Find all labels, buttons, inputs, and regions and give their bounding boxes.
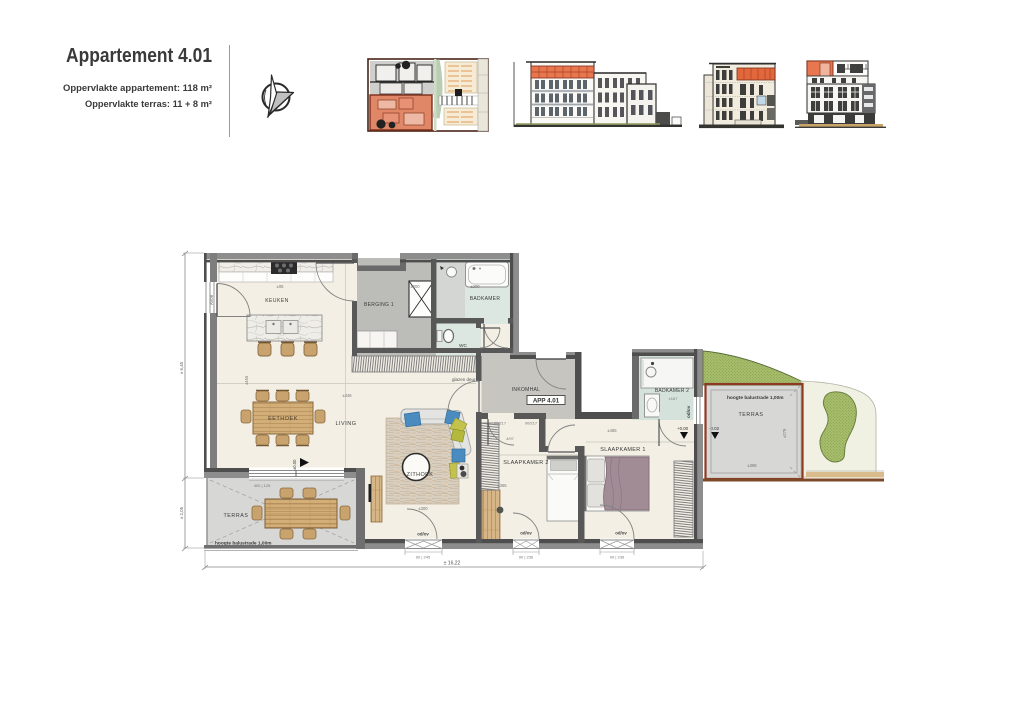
- svg-text:±465: ±465: [244, 375, 249, 385]
- svg-text:±300: ±300: [410, 284, 420, 289]
- svg-text:±398: ±398: [747, 463, 757, 468]
- svg-text:BERGING 1: BERGING 1: [364, 302, 394, 308]
- svg-text:±485: ±485: [607, 428, 617, 433]
- svg-text:WC: WC: [459, 343, 468, 349]
- svg-text:90/217: 90/217: [525, 421, 538, 426]
- svg-text:±0.00: ±0.00: [292, 459, 297, 470]
- svg-text:± 2,05: ± 2,05: [179, 506, 184, 519]
- svg-text:90 | 245: 90 | 245: [416, 555, 431, 560]
- svg-text:± 16,22: ± 16,22: [444, 561, 461, 567]
- svg-text:4/97: 4/97: [506, 436, 515, 441]
- svg-text:hoogte balustrade 1,00m: hoogte balustrade 1,00m: [727, 395, 784, 401]
- svg-text:±300: ±300: [418, 506, 428, 511]
- svg-text:od/ov: od/ov: [417, 532, 429, 537]
- svg-text:ZITHOEK: ZITHOEK: [407, 472, 434, 478]
- svg-text:±06: ±06: [277, 284, 285, 289]
- svg-text:od/ov: od/ov: [520, 531, 532, 536]
- svg-text:EETHOEK: EETHOEK: [268, 416, 298, 422]
- svg-text:glazen deur: glazen deur: [452, 377, 476, 382]
- svg-text:±200: ±200: [470, 284, 480, 289]
- svg-text:SLAAPKAMER 2: SLAAPKAMER 2: [503, 460, 548, 466]
- svg-text:±279: ±279: [782, 428, 787, 438]
- svg-text:Oppervlakte appartement: 118 m: Oppervlakte appartement: 118 m²: [63, 83, 212, 93]
- svg-text:± 6,45: ± 6,45: [179, 361, 184, 374]
- svg-text:Oppervlakte terras: 11 + 8 m²: Oppervlakte terras: 11 + 8 m²: [85, 99, 212, 109]
- svg-text:±346: ±346: [342, 393, 352, 398]
- svg-text:TERRAS: TERRAS: [738, 412, 763, 418]
- svg-text:LIVING: LIVING: [335, 421, 356, 427]
- svg-text:APP 4.01: APP 4.01: [533, 398, 560, 405]
- svg-text:BADKAMER 2: BADKAMER 2: [655, 388, 689, 394]
- svg-text:BADKAMER: BADKAMER: [470, 296, 501, 302]
- svg-text:Appartement 4.01: Appartement 4.01: [66, 45, 212, 67]
- svg-text:90/217: 90/217: [494, 421, 507, 426]
- svg-text:90 | 236: 90 | 236: [610, 555, 625, 560]
- svg-text:90 | 236: 90 | 236: [519, 555, 534, 560]
- svg-text:±167: ±167: [669, 396, 679, 401]
- svg-text:400 | 125: 400 | 125: [254, 483, 271, 488]
- svg-text:±365: ±365: [497, 483, 507, 488]
- svg-text:+0.00: +0.00: [677, 426, 689, 431]
- svg-text:INKOMHAL: INKOMHAL: [512, 387, 541, 393]
- svg-text:od/ov: od/ov: [686, 405, 691, 418]
- svg-text:od/ov: od/ov: [615, 531, 627, 536]
- svg-text:AV09: AV09: [209, 294, 214, 305]
- svg-text:SLAAPKAMER 1: SLAAPKAMER 1: [600, 447, 645, 453]
- svg-text:KEUKEN: KEUKEN: [265, 298, 289, 304]
- svg-text:TERRAS: TERRAS: [223, 513, 248, 519]
